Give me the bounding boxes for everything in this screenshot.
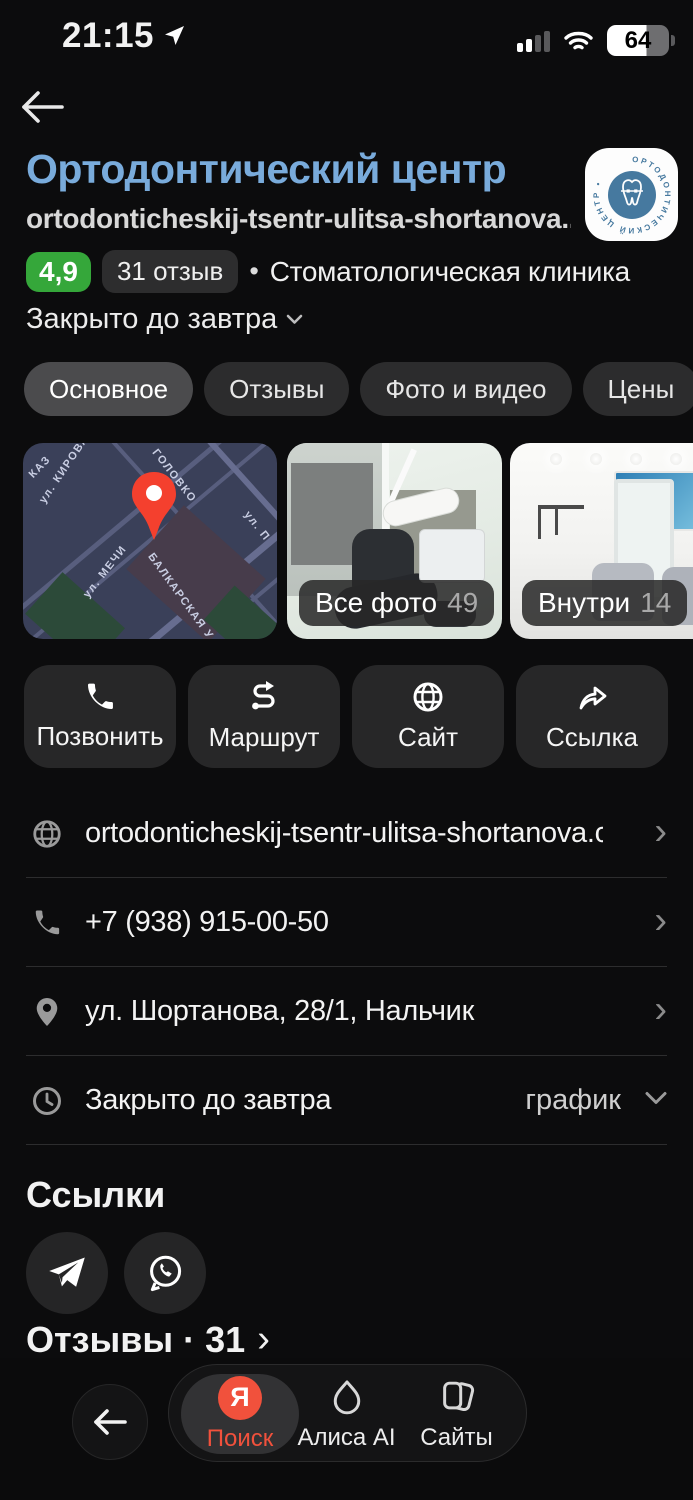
reviews-count-pill[interactable]: 31 отзыв bbox=[102, 250, 238, 293]
share-link-button[interactable]: Ссылка bbox=[516, 665, 668, 768]
photo-coat-rack bbox=[538, 505, 584, 539]
yandex-logo-icon: Я bbox=[218, 1376, 262, 1420]
chevron-right-icon: › bbox=[257, 1318, 270, 1361]
nav-pill: Я Поиск Алиса AI Сайты bbox=[168, 1364, 527, 1462]
route-button[interactable]: Маршрут bbox=[188, 665, 340, 768]
website-button[interactable]: Сайт bbox=[352, 665, 504, 768]
tab-bar: Основное Отзывы Фото и видео Цены Новост… bbox=[24, 362, 693, 416]
tooth-logo-icon: ОРТОДОНТИЧЕСКИЙ ЦЕНТР • bbox=[590, 153, 674, 237]
website-url: ortodonticheskij-tsentr-ulitsa-shortanov… bbox=[85, 817, 603, 850]
telegram-icon bbox=[47, 1255, 87, 1291]
phone-row[interactable]: +7 (938) 915-00-50 › bbox=[0, 878, 693, 967]
all-photos-text: Все фото bbox=[315, 587, 437, 619]
photo-ceiling-light bbox=[670, 453, 682, 465]
phone-number: +7 (938) 915-00-50 bbox=[85, 906, 603, 939]
bottom-nav: Я Поиск Алиса AI Сайты bbox=[0, 1358, 693, 1500]
inside-count: 14 bbox=[640, 587, 671, 619]
tab-reviews[interactable]: Отзывы bbox=[204, 362, 349, 416]
status-bar: 21:15 64 bbox=[0, 0, 693, 70]
route-label: Маршрут bbox=[209, 722, 320, 753]
location-pin-icon bbox=[33, 996, 61, 1028]
nav-item-search[interactable]: Я Поиск bbox=[181, 1374, 299, 1454]
nav-search-label: Поиск bbox=[207, 1425, 274, 1453]
status-icons: 64 bbox=[517, 25, 669, 56]
reviews-heading-text: Отзывы · 31 bbox=[26, 1319, 245, 1361]
map-pin-icon bbox=[126, 468, 182, 540]
reviews-heading[interactable]: Отзывы · 31 › bbox=[26, 1318, 270, 1361]
dot-separator: • bbox=[249, 256, 258, 287]
inside-text: Внутри bbox=[538, 587, 630, 619]
chevron-right-icon: › bbox=[654, 990, 667, 1028]
call-button[interactable]: Позвонить bbox=[24, 665, 176, 768]
route-icon bbox=[247, 680, 281, 714]
photo-inside[interactable]: Внутри 14 bbox=[510, 443, 693, 639]
info-list: ortodonticheskij-tsentr-ulitsa-shortanov… bbox=[0, 789, 693, 1145]
photo-all-photos[interactable]: Все фото 49 bbox=[287, 443, 502, 639]
social-links bbox=[26, 1232, 206, 1314]
map-street-label: ул. КИРОВА bbox=[37, 443, 92, 506]
globe-icon bbox=[411, 680, 445, 714]
phone-icon bbox=[32, 908, 62, 938]
rating-row: 4,9 31 отзыв • Стоматологическая клиника bbox=[26, 250, 630, 293]
schedule-row[interactable]: Закрыто до завтра график bbox=[0, 1056, 693, 1145]
photo-strip: КАЗ ул. КИРОВА ГОЛОВКО ул. МЕЧИ БАЛКАРСК… bbox=[0, 443, 693, 639]
all-photos-count: 49 bbox=[447, 587, 478, 619]
nav-item-sites[interactable]: Сайты bbox=[404, 1374, 509, 1454]
chevron-right-icon: › bbox=[654, 901, 667, 939]
map-street-label: ул. П bbox=[242, 509, 273, 544]
website-label: Сайт bbox=[398, 722, 458, 753]
battery-icon: 64 bbox=[607, 25, 669, 56]
action-bar: Позвонить Маршрут Сайт Ссылка bbox=[24, 665, 668, 768]
nav-alice-label: Алиса AI bbox=[297, 1424, 395, 1452]
photo-ceiling-light bbox=[590, 453, 602, 465]
whatsapp-icon bbox=[144, 1252, 186, 1294]
time-text: 21:15 bbox=[62, 16, 154, 56]
share-label: Ссылка bbox=[546, 722, 638, 753]
tab-photos[interactable]: Фото и видео bbox=[360, 362, 571, 416]
photo-ceiling-light bbox=[550, 453, 562, 465]
location-arrow-icon bbox=[162, 24, 186, 48]
business-category: Стоматологическая клиника bbox=[270, 256, 630, 288]
phone-icon bbox=[84, 681, 116, 713]
map-street-label: КАЗ bbox=[27, 453, 54, 480]
globe-icon bbox=[31, 818, 63, 850]
nav-back-button[interactable] bbox=[72, 1384, 148, 1460]
rating-badge[interactable]: 4,9 bbox=[26, 252, 91, 292]
links-section-title: Ссылки bbox=[26, 1174, 165, 1216]
inside-label: Внутри 14 bbox=[522, 580, 687, 626]
photo-ceiling-light bbox=[630, 453, 642, 465]
clock-icon bbox=[32, 1086, 62, 1116]
address-row[interactable]: ул. Шортанова, 28/1, Нальчик › bbox=[0, 967, 693, 1056]
back-arrow-icon bbox=[91, 1406, 129, 1438]
tab-prices[interactable]: Цены bbox=[583, 362, 693, 416]
back-button[interactable] bbox=[18, 86, 66, 128]
telegram-button[interactable] bbox=[26, 1232, 108, 1314]
whatsapp-button[interactable] bbox=[124, 1232, 206, 1314]
alice-drop-icon bbox=[326, 1377, 368, 1419]
business-logo: ОРТОДОНТИЧЕСКИЙ ЦЕНТР • bbox=[585, 148, 678, 241]
schedule-link[interactable]: график bbox=[525, 1084, 621, 1117]
tab-main[interactable]: Основное bbox=[24, 362, 193, 416]
photo-equipment-cart bbox=[419, 529, 485, 583]
call-label: Позвонить bbox=[36, 721, 163, 752]
all-photos-label: Все фото 49 bbox=[299, 580, 494, 626]
chevron-right-icon: › bbox=[654, 812, 667, 850]
app-screen: 21:15 64 Ортодонтический центр ortodonti… bbox=[0, 0, 693, 1500]
page-title: Ортодонтический центр bbox=[26, 146, 506, 193]
chevron-down-icon bbox=[286, 314, 303, 325]
page-subtitle: ortodonticheskij-tsentr-ulitsa-shortanov… bbox=[26, 203, 571, 235]
nav-item-alice[interactable]: Алиса AI bbox=[294, 1374, 399, 1454]
open-status-toggle[interactable]: Закрыто до завтра bbox=[26, 303, 303, 336]
status-time: 21:15 bbox=[62, 16, 186, 56]
map-thumbnail[interactable]: КАЗ ул. КИРОВА ГОЛОВКО ул. МЕЧИ БАЛКАРСК… bbox=[23, 443, 277, 639]
share-arrow-icon bbox=[575, 680, 609, 714]
back-arrow-icon bbox=[18, 86, 66, 128]
wifi-icon bbox=[563, 29, 594, 53]
signal-icon bbox=[517, 29, 550, 52]
battery-percent: 64 bbox=[625, 27, 652, 55]
nav-sites-label: Сайты bbox=[420, 1424, 493, 1452]
open-status-text: Закрыто до завтра bbox=[26, 303, 277, 336]
website-row[interactable]: ortodonticheskij-tsentr-ulitsa-shortanov… bbox=[0, 789, 693, 878]
address-text: ул. Шортанова, 28/1, Нальчик bbox=[85, 995, 603, 1028]
sites-cards-icon bbox=[436, 1377, 478, 1419]
chevron-down-icon bbox=[645, 1091, 667, 1105]
